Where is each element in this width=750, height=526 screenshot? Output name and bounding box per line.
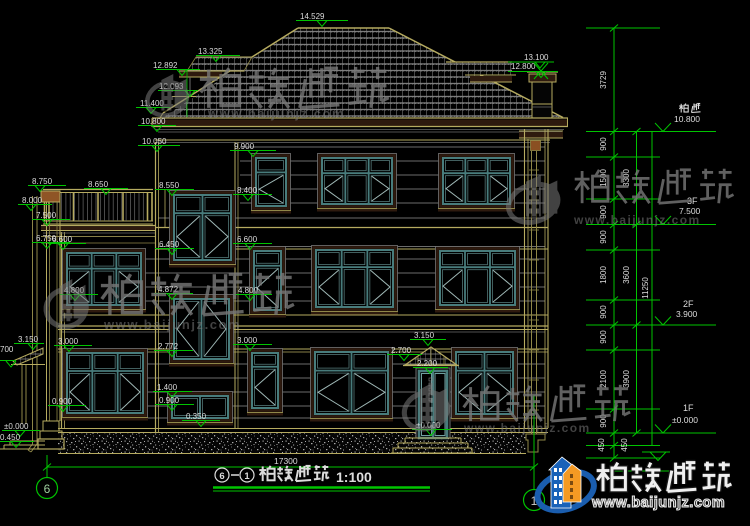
svg-text:900: 900 bbox=[599, 305, 608, 319]
svg-text:2F: 2F bbox=[683, 299, 694, 309]
svg-text:0.350: 0.350 bbox=[186, 412, 207, 421]
svg-text:8.000: 8.000 bbox=[22, 196, 43, 205]
svg-text:6: 6 bbox=[44, 482, 51, 496]
svg-text:3.000: 3.000 bbox=[237, 336, 258, 345]
svg-text:3600: 3600 bbox=[622, 266, 631, 284]
svg-text:12.800: 12.800 bbox=[511, 62, 536, 71]
svg-text:0.900: 0.900 bbox=[159, 396, 180, 405]
svg-text:900: 900 bbox=[599, 330, 608, 344]
svg-text:700: 700 bbox=[0, 345, 14, 354]
svg-text:2.772: 2.772 bbox=[158, 342, 179, 351]
svg-text:www.baijunjz.com: www.baijunjz.com bbox=[463, 421, 591, 435]
svg-text:450: 450 bbox=[597, 438, 606, 452]
svg-text:1:100: 1:100 bbox=[336, 469, 372, 485]
svg-text:1F: 1F bbox=[683, 403, 694, 413]
svg-text:6.600: 6.600 bbox=[237, 235, 258, 244]
svg-text:10.800: 10.800 bbox=[141, 117, 166, 126]
svg-text:3.150: 3.150 bbox=[18, 335, 39, 344]
svg-text:17300: 17300 bbox=[274, 456, 298, 466]
svg-text:900: 900 bbox=[599, 230, 608, 244]
svg-text:10.800: 10.800 bbox=[674, 114, 700, 124]
svg-text:1800: 1800 bbox=[599, 266, 608, 284]
svg-text:6: 6 bbox=[219, 471, 224, 482]
svg-text:3.900: 3.900 bbox=[676, 309, 698, 319]
svg-text:11250: 11250 bbox=[641, 277, 650, 299]
svg-text:13.325: 13.325 bbox=[198, 47, 223, 56]
svg-text:7.500: 7.500 bbox=[36, 211, 57, 220]
svg-text:1.400: 1.400 bbox=[157, 383, 178, 392]
svg-text:900: 900 bbox=[599, 137, 608, 151]
svg-text:www.baijunjz.com: www.baijunjz.com bbox=[591, 495, 725, 511]
svg-text:11.400: 11.400 bbox=[140, 99, 164, 108]
svg-text:±0.000: ±0.000 bbox=[4, 422, 29, 431]
svg-text:8.750: 8.750 bbox=[32, 177, 53, 186]
svg-text:3729: 3729 bbox=[599, 71, 608, 89]
svg-text:10.050: 10.050 bbox=[142, 137, 167, 146]
svg-text:8.400: 8.400 bbox=[237, 186, 258, 195]
svg-text:14.529: 14.529 bbox=[300, 12, 325, 21]
svg-text:8.650: 8.650 bbox=[88, 180, 109, 189]
svg-text:www.baijunjz.com: www.baijunjz.com bbox=[103, 317, 241, 332]
svg-text:3.150: 3.150 bbox=[414, 331, 435, 340]
svg-text:450: 450 bbox=[620, 438, 629, 452]
svg-text:www.baijunjz.com: www.baijunjz.com bbox=[573, 213, 701, 227]
svg-text:9.900: 9.900 bbox=[234, 142, 255, 151]
svg-text:12.892: 12.892 bbox=[153, 61, 178, 70]
svg-text:0.450: 0.450 bbox=[0, 433, 21, 442]
svg-text:±0.000: ±0.000 bbox=[672, 415, 698, 425]
svg-text:2.700: 2.700 bbox=[391, 346, 412, 355]
svg-text:www.baijunjz.com: www.baijunjz.com bbox=[207, 106, 345, 121]
svg-text:2.200: 2.200 bbox=[417, 359, 438, 368]
svg-text:6.450: 6.450 bbox=[159, 240, 180, 249]
svg-text:8.550: 8.550 bbox=[159, 181, 180, 190]
svg-text:6.600: 6.600 bbox=[52, 235, 73, 244]
svg-text:1: 1 bbox=[244, 471, 250, 482]
svg-text:3900: 3900 bbox=[622, 370, 631, 388]
svg-text:13.100: 13.100 bbox=[524, 53, 549, 62]
svg-text:3.000: 3.000 bbox=[58, 337, 79, 346]
svg-text:0.900: 0.900 bbox=[52, 397, 73, 406]
